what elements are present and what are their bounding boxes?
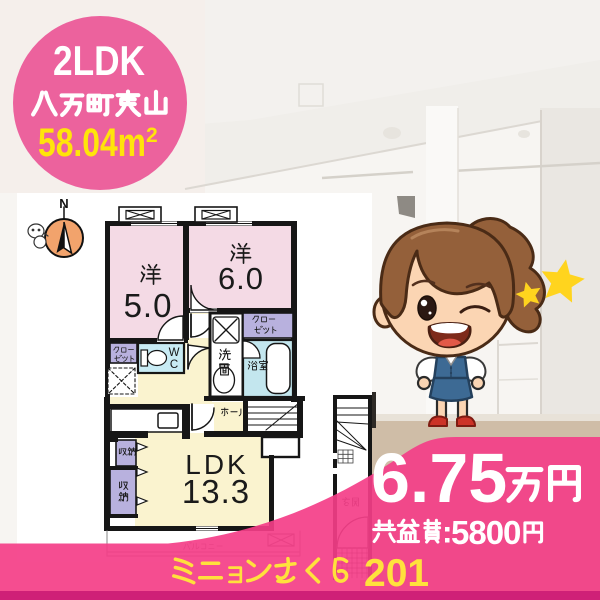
- svg-text:13.3: 13.3: [182, 473, 250, 510]
- svg-text:W: W: [169, 347, 180, 359]
- svg-text:2: 2: [146, 124, 158, 147]
- svg-text:58.04m: 58.04m: [38, 121, 146, 165]
- svg-text:2LDK: 2LDK: [53, 37, 145, 84]
- svg-text:201: 201: [364, 552, 429, 595]
- svg-text:6.0: 6.0: [218, 261, 264, 296]
- svg-text:5.0: 5.0: [124, 287, 173, 324]
- svg-text:5800: 5800: [451, 514, 520, 551]
- svg-text:6.75: 6.75: [371, 439, 507, 517]
- svg-text:N: N: [59, 196, 68, 211]
- svg-text:C: C: [170, 359, 178, 371]
